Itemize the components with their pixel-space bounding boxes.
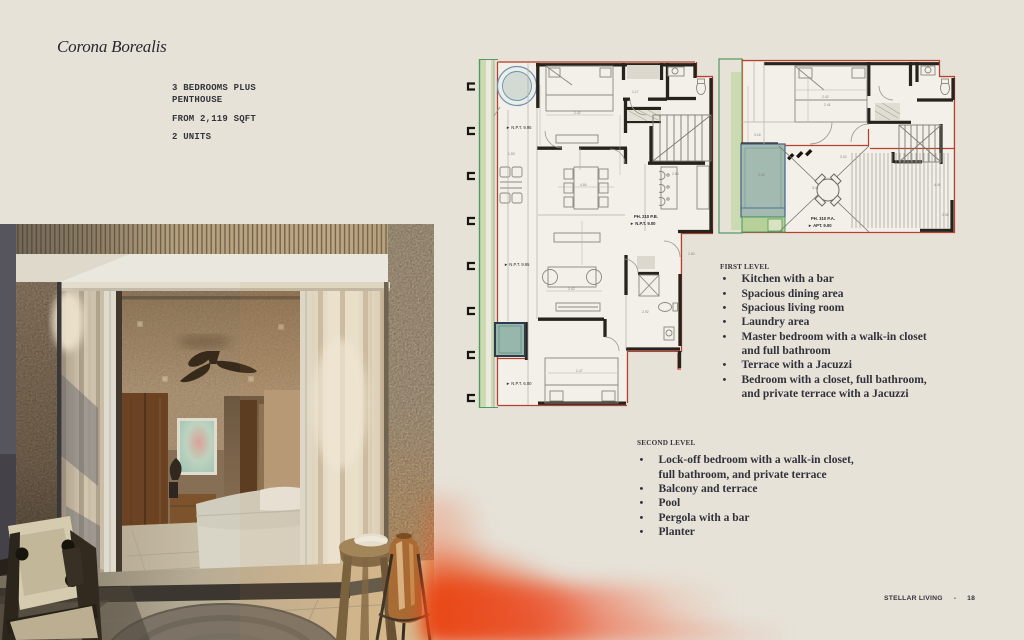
svg-text:2.42: 2.42 [574, 111, 581, 115]
svg-text:2.08: 2.08 [758, 173, 765, 177]
svg-text:4.40: 4.40 [934, 183, 941, 187]
svg-text:2.86: 2.86 [672, 172, 679, 176]
svg-text:3.16: 3.16 [754, 133, 761, 137]
svg-text:3.41: 3.41 [812, 186, 819, 190]
svg-text:3.02: 3.02 [840, 155, 847, 159]
svg-text:PH. 310 P.A.: PH. 310 P.A. [811, 216, 835, 221]
svg-text:► N.P.T. 6.00: ► N.P.T. 6.00 [506, 381, 532, 386]
svg-text:2.80: 2.80 [688, 252, 695, 256]
svg-text:2.08: 2.08 [942, 213, 949, 217]
svg-text:PH. 210 P.B.: PH. 210 P.B. [634, 214, 658, 219]
svg-text:2.92: 2.92 [642, 310, 649, 314]
svg-text:1.17: 1.17 [632, 90, 639, 94]
svg-text:► N.P.T. 9.95: ► N.P.T. 9.95 [506, 125, 532, 130]
svg-text:► APT. 9.00: ► APT. 9.00 [808, 223, 832, 228]
svg-text:4.84: 4.84 [580, 183, 587, 187]
svg-text:1.53: 1.53 [508, 152, 515, 156]
svg-text:2.42: 2.42 [822, 95, 829, 99]
svg-text:3.42: 3.42 [568, 287, 575, 291]
svg-text:► N.P.T. 9.95: ► N.P.T. 9.95 [504, 262, 530, 267]
svg-text:► N.P.T. 9.00: ► N.P.T. 9.00 [630, 221, 656, 226]
svg-text:2.47: 2.47 [576, 369, 583, 373]
svg-text:2.41: 2.41 [824, 103, 831, 107]
